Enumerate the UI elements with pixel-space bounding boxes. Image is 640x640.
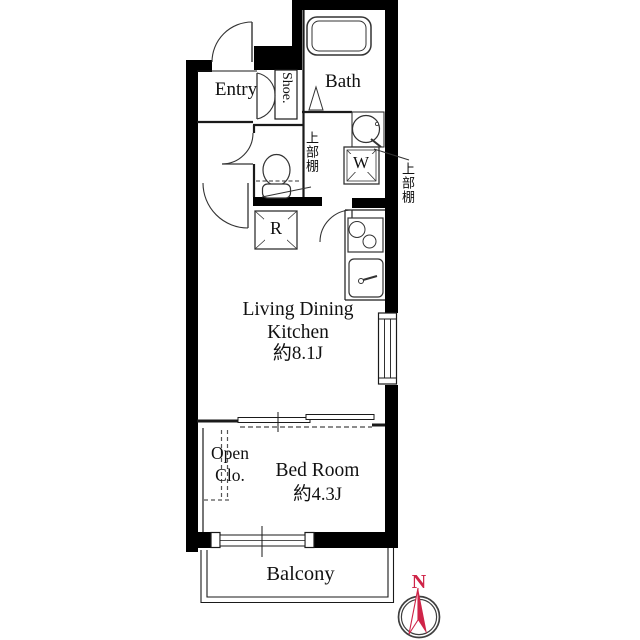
- stove-icon: [348, 218, 383, 252]
- bedroom-window: [211, 526, 314, 557]
- label-bath: Bath: [311, 72, 375, 93]
- label-bedroom-area: 約4.3J: [245, 486, 390, 506]
- toilet-icon: [256, 155, 301, 199]
- label-washer: W: [349, 154, 373, 172]
- floor-plan: Entry Bath Shoe. 上部棚 上部棚 W R Living Dini…: [0, 0, 640, 640]
- label-shoe-closet: Shoe.: [278, 72, 294, 104]
- bathtub-icon: [307, 17, 371, 55]
- compass-north-label: N: [405, 572, 433, 594]
- label-ldk-line2: Kitchen: [206, 322, 390, 343]
- label-entry: Entry: [201, 80, 271, 101]
- sink-icon: [349, 259, 383, 297]
- label-bedroom: Bed Room: [245, 460, 390, 481]
- sliding-partition: [238, 412, 374, 432]
- washbasin-icon: [352, 112, 384, 147]
- label-ldk-line1: Living Dining: [206, 299, 390, 320]
- label-ldk-area: 約8.1J: [206, 344, 390, 365]
- toilet-door-arc: [222, 133, 253, 164]
- label-balcony: Balcony: [228, 563, 373, 585]
- entry-door-arc: [212, 22, 252, 62]
- label-refrigerator: R: [264, 219, 288, 238]
- label-upper-shelf-toilet: 上部棚: [302, 131, 321, 173]
- hall-door-arc: [203, 183, 248, 228]
- label-upper-shelf-washer: 上部棚: [398, 162, 417, 204]
- washroom-door-arc: [320, 210, 352, 242]
- compass-icon: [399, 588, 440, 638]
